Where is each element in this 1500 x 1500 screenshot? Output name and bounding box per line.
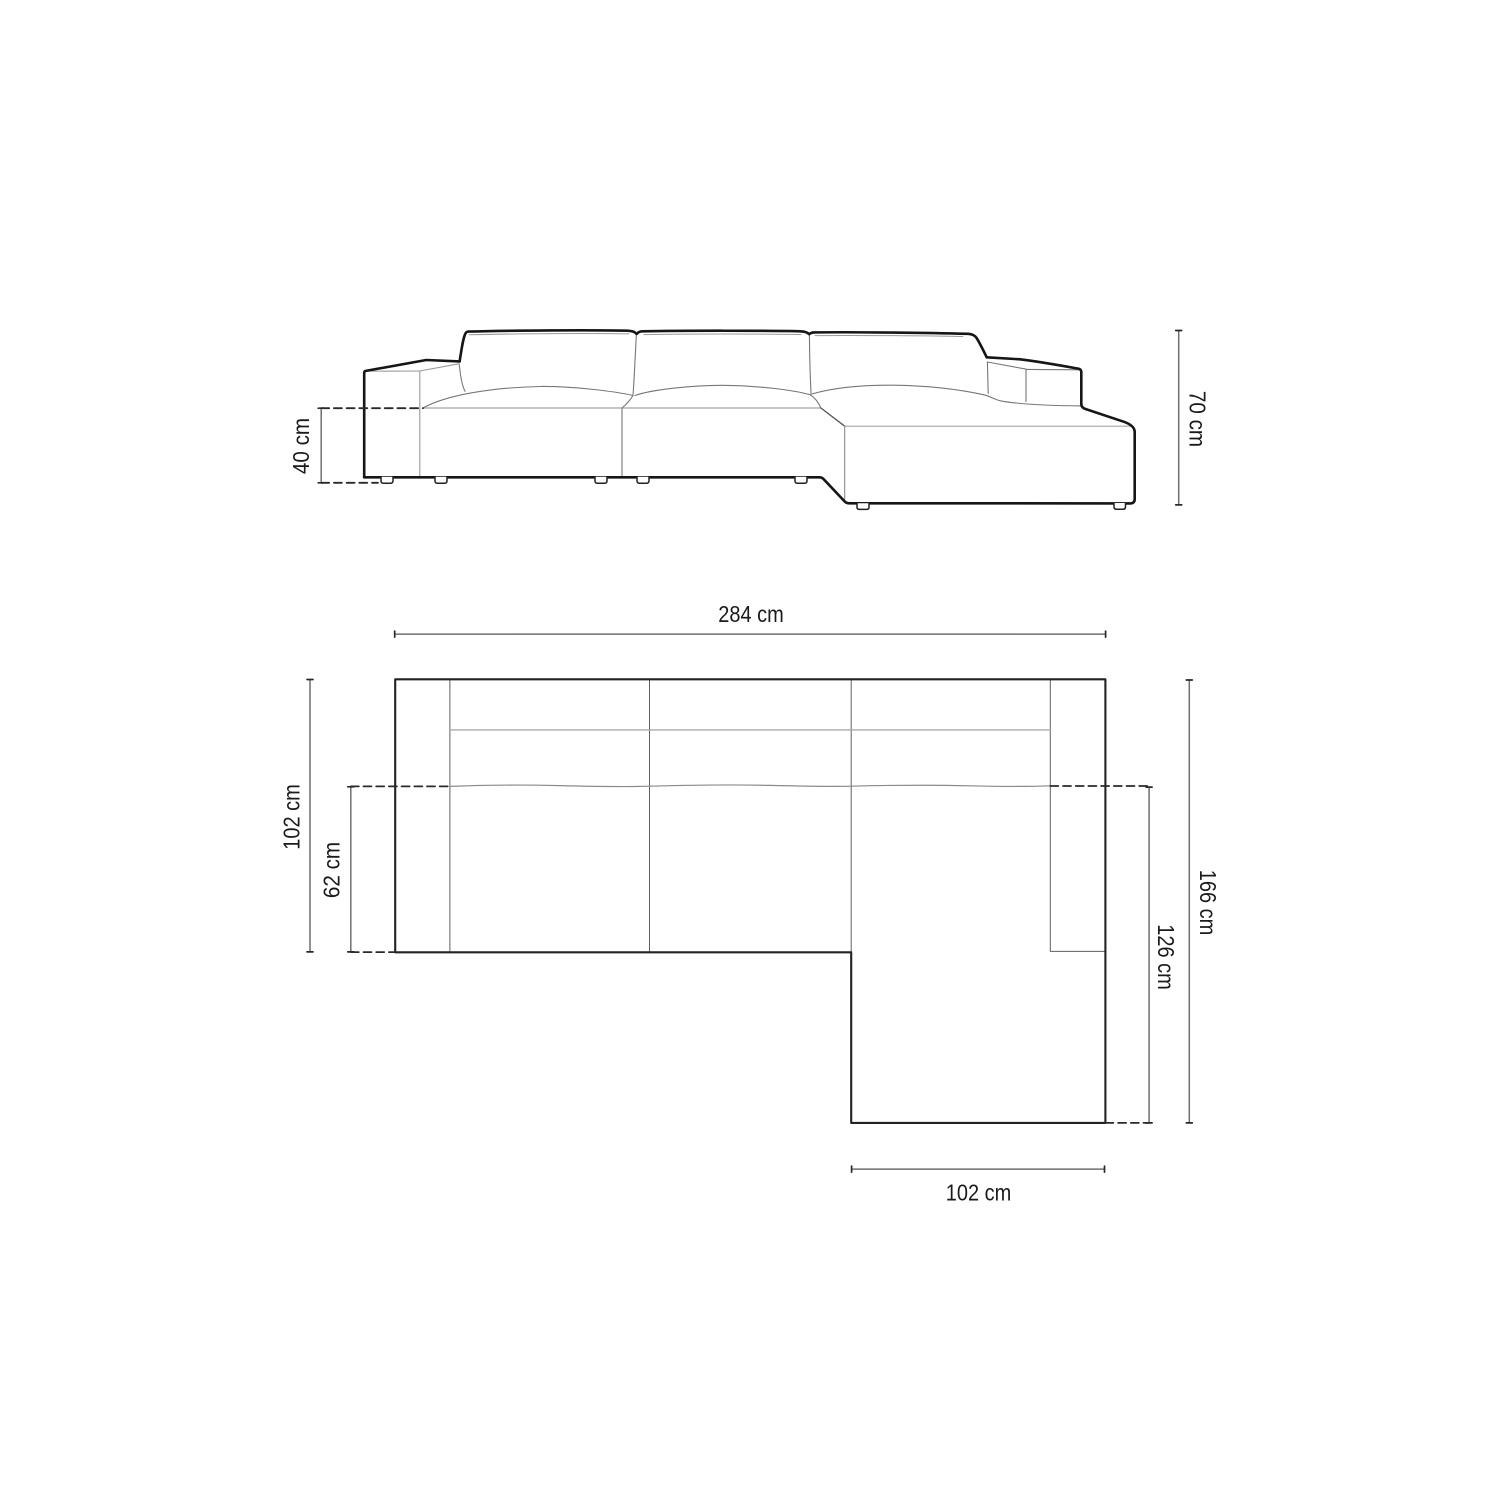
svg-text:126 cm: 126 cm xyxy=(1153,924,1180,989)
svg-text:70 cm: 70 cm xyxy=(1184,391,1211,447)
svg-text:40 cm: 40 cm xyxy=(288,418,315,474)
svg-text:166 cm: 166 cm xyxy=(1195,870,1222,935)
svg-text:102 cm: 102 cm xyxy=(946,1179,1011,1206)
svg-text:284 cm: 284 cm xyxy=(718,600,783,627)
svg-text:62 cm: 62 cm xyxy=(318,842,345,898)
svg-text:102 cm: 102 cm xyxy=(278,784,305,849)
